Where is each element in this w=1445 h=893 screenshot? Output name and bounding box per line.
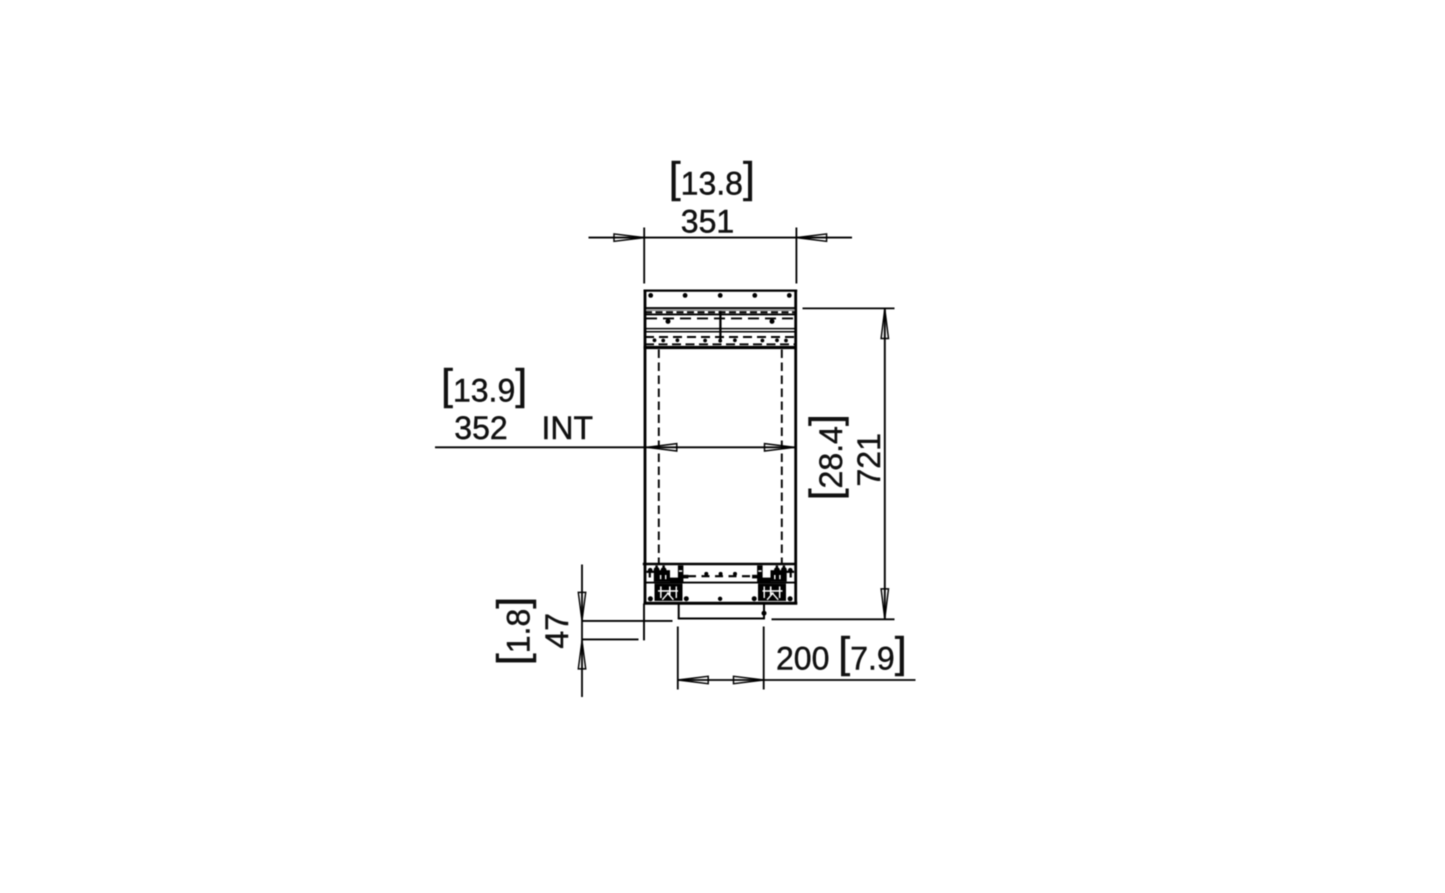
svg-text:352: 352 bbox=[454, 410, 507, 446]
svg-text:721: 721 bbox=[851, 433, 887, 486]
svg-text:47: 47 bbox=[539, 613, 575, 649]
svg-text:351: 351 bbox=[681, 204, 734, 240]
svg-text:INT: INT bbox=[542, 410, 594, 446]
